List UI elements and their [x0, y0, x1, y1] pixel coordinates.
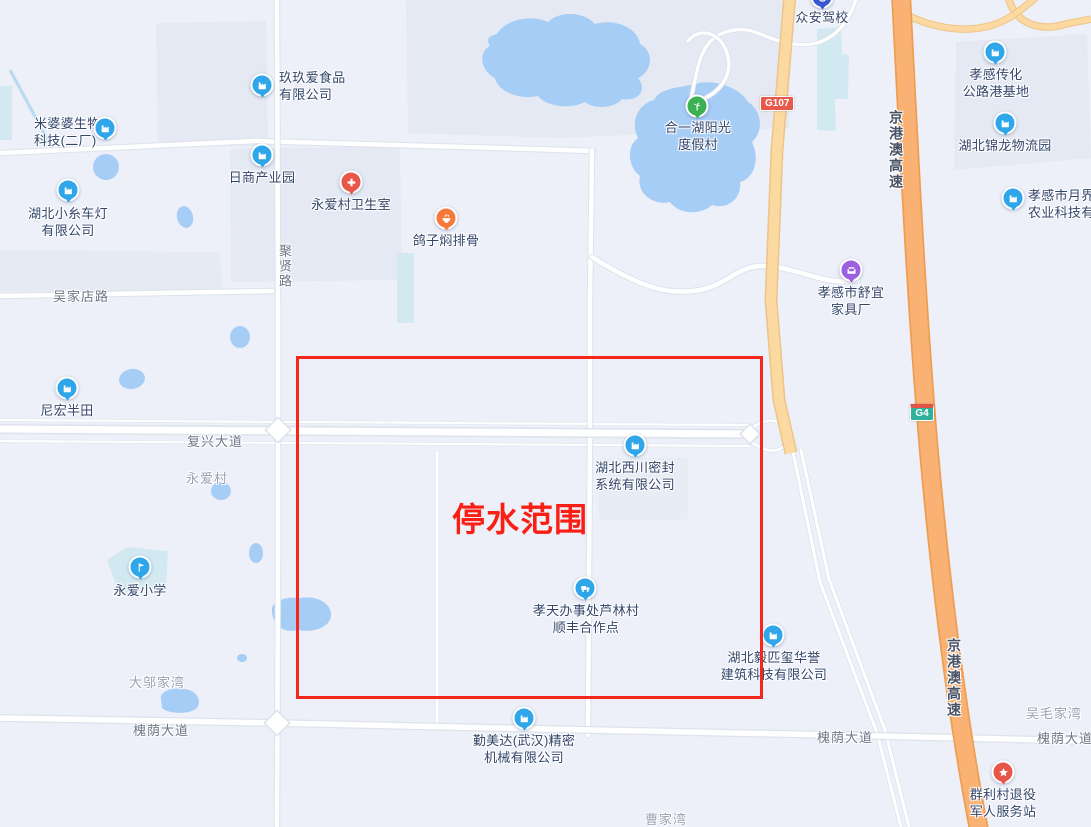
school-flag-icon[interactable] — [129, 556, 152, 579]
road-label-huaiyin-avenue-2: 槐荫大道 — [817, 727, 873, 746]
map-canvas[interactable]: G107 G4 聚贤路 吴家店路 复兴大道 槐荫大道 槐荫大道 槐荫大道 京港澳… — [0, 0, 1091, 827]
area-label-caojiawan: 曹家湾 — [645, 809, 687, 827]
road-label-jinggangao-expressway-1: 京港澳高速 — [886, 110, 906, 190]
factory-icon[interactable] — [1002, 187, 1025, 210]
road-shield-g107: G107 — [760, 96, 794, 111]
road-label-huaiyin-avenue-3: 槐荫大道 — [1037, 728, 1091, 747]
area-label-wumaojiawan: 吴毛家湾 — [1026, 703, 1082, 722]
poi-label: 合一湖阳光度假村 — [665, 119, 732, 153]
factory-icon[interactable] — [94, 117, 117, 140]
palm-tree-icon[interactable] — [686, 95, 709, 118]
water-outage-area-label: 停水范围 — [452, 493, 588, 541]
poi-label: 孝感传化公路港基地 — [963, 66, 1030, 100]
furniture-icon[interactable] — [840, 259, 863, 282]
road-shield-g4: G4 — [910, 404, 934, 421]
factory-icon[interactable] — [251, 74, 274, 97]
road-label-wujiadianlu: 吴家店路 — [53, 286, 109, 305]
road-label-jinggangao-expressway-2: 京港澳高速 — [944, 638, 964, 718]
poi-label: 孝天办事处芦林村顺丰合作点 — [533, 602, 639, 636]
poi-label: 群利村退役军人服务站 — [970, 786, 1037, 820]
poi-label: 湖北西川密封系统有限公司 — [595, 459, 675, 493]
food-bowl-icon[interactable] — [435, 207, 458, 230]
poi-label: 玖玖爱食品有限公司 — [279, 69, 346, 103]
poi-label: 勤美达(武汉)精密机械有限公司 — [473, 732, 575, 766]
factory-icon[interactable] — [56, 377, 79, 400]
road-label-fuxing-avenue: 复兴大道 — [187, 431, 243, 450]
factory-icon[interactable] — [994, 112, 1017, 135]
area-label-dawujiawan: 大邬家湾 — [129, 672, 185, 691]
truck-icon[interactable] — [574, 577, 597, 600]
poi-label: 尼宏半田 — [40, 402, 93, 419]
poi-label: 米婆婆生物科技(二厂) — [34, 115, 101, 149]
poi-label: 湖北锦龙物流园 — [958, 137, 1051, 154]
road-label-juxianlu: 聚贤路 — [275, 244, 294, 289]
poi-label: 日商产业园 — [229, 169, 296, 186]
factory-icon[interactable] — [251, 144, 274, 167]
poi-label: 永爱村卫生室 — [311, 196, 391, 213]
factory-icon[interactable] — [513, 707, 536, 730]
clinic-cross-icon[interactable] — [340, 171, 363, 194]
star-icon[interactable] — [992, 761, 1015, 784]
factory-icon[interactable] — [984, 41, 1007, 64]
factory-icon[interactable] — [762, 624, 785, 647]
road-label-huaiyin-avenue-1: 槐荫大道 — [133, 720, 189, 739]
poi-label: 孝感市舒宜家具厂 — [818, 284, 885, 318]
poi-label: 永爱小学 — [113, 582, 166, 599]
poi-label: 湖北毅匹玺华誉建筑科技有限公司 — [721, 649, 827, 683]
area-label-yongaicun: 永爱村 — [186, 468, 228, 487]
poi-label: 湖北小糸车灯有限公司 — [28, 205, 108, 239]
poi-label: 鸽子焖排骨 — [413, 232, 480, 249]
factory-icon[interactable] — [57, 179, 80, 202]
poi-label: 孝感市月界生农业科技有限 — [1028, 187, 1091, 221]
factory-icon[interactable] — [624, 434, 647, 457]
